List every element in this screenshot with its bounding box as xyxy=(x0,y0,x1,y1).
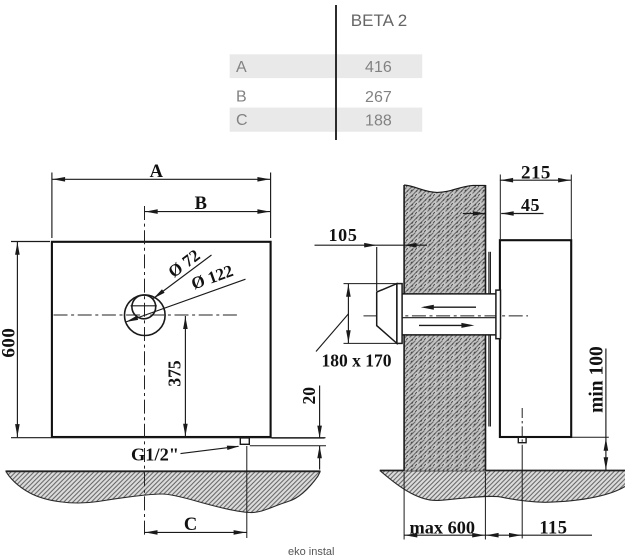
svg-text:BETA 2: BETA 2 xyxy=(351,11,407,30)
svg-text:416: 416 xyxy=(365,59,392,76)
svg-text:105: 105 xyxy=(328,225,357,245)
svg-text:B: B xyxy=(195,194,207,214)
svg-text:B: B xyxy=(236,89,247,106)
svg-text:min 100: min 100 xyxy=(587,346,608,413)
svg-text:215: 215 xyxy=(521,163,551,184)
svg-text:max 600: max 600 xyxy=(410,517,476,537)
svg-text:20: 20 xyxy=(299,387,319,405)
svg-text:600: 600 xyxy=(0,328,19,358)
svg-text:eko instal: eko instal xyxy=(288,546,334,557)
svg-text:115: 115 xyxy=(539,518,567,538)
svg-text:267: 267 xyxy=(365,89,392,106)
svg-text:45: 45 xyxy=(521,195,540,215)
svg-text:180 x 170: 180 x 170 xyxy=(322,351,392,371)
svg-text:A: A xyxy=(236,59,247,76)
svg-text:C: C xyxy=(236,112,248,129)
svg-text:G1/2": G1/2" xyxy=(131,445,179,465)
svg-text:188: 188 xyxy=(365,112,392,129)
svg-text:A: A xyxy=(150,162,164,182)
svg-text:C: C xyxy=(184,515,197,535)
svg-text:375: 375 xyxy=(165,360,185,387)
